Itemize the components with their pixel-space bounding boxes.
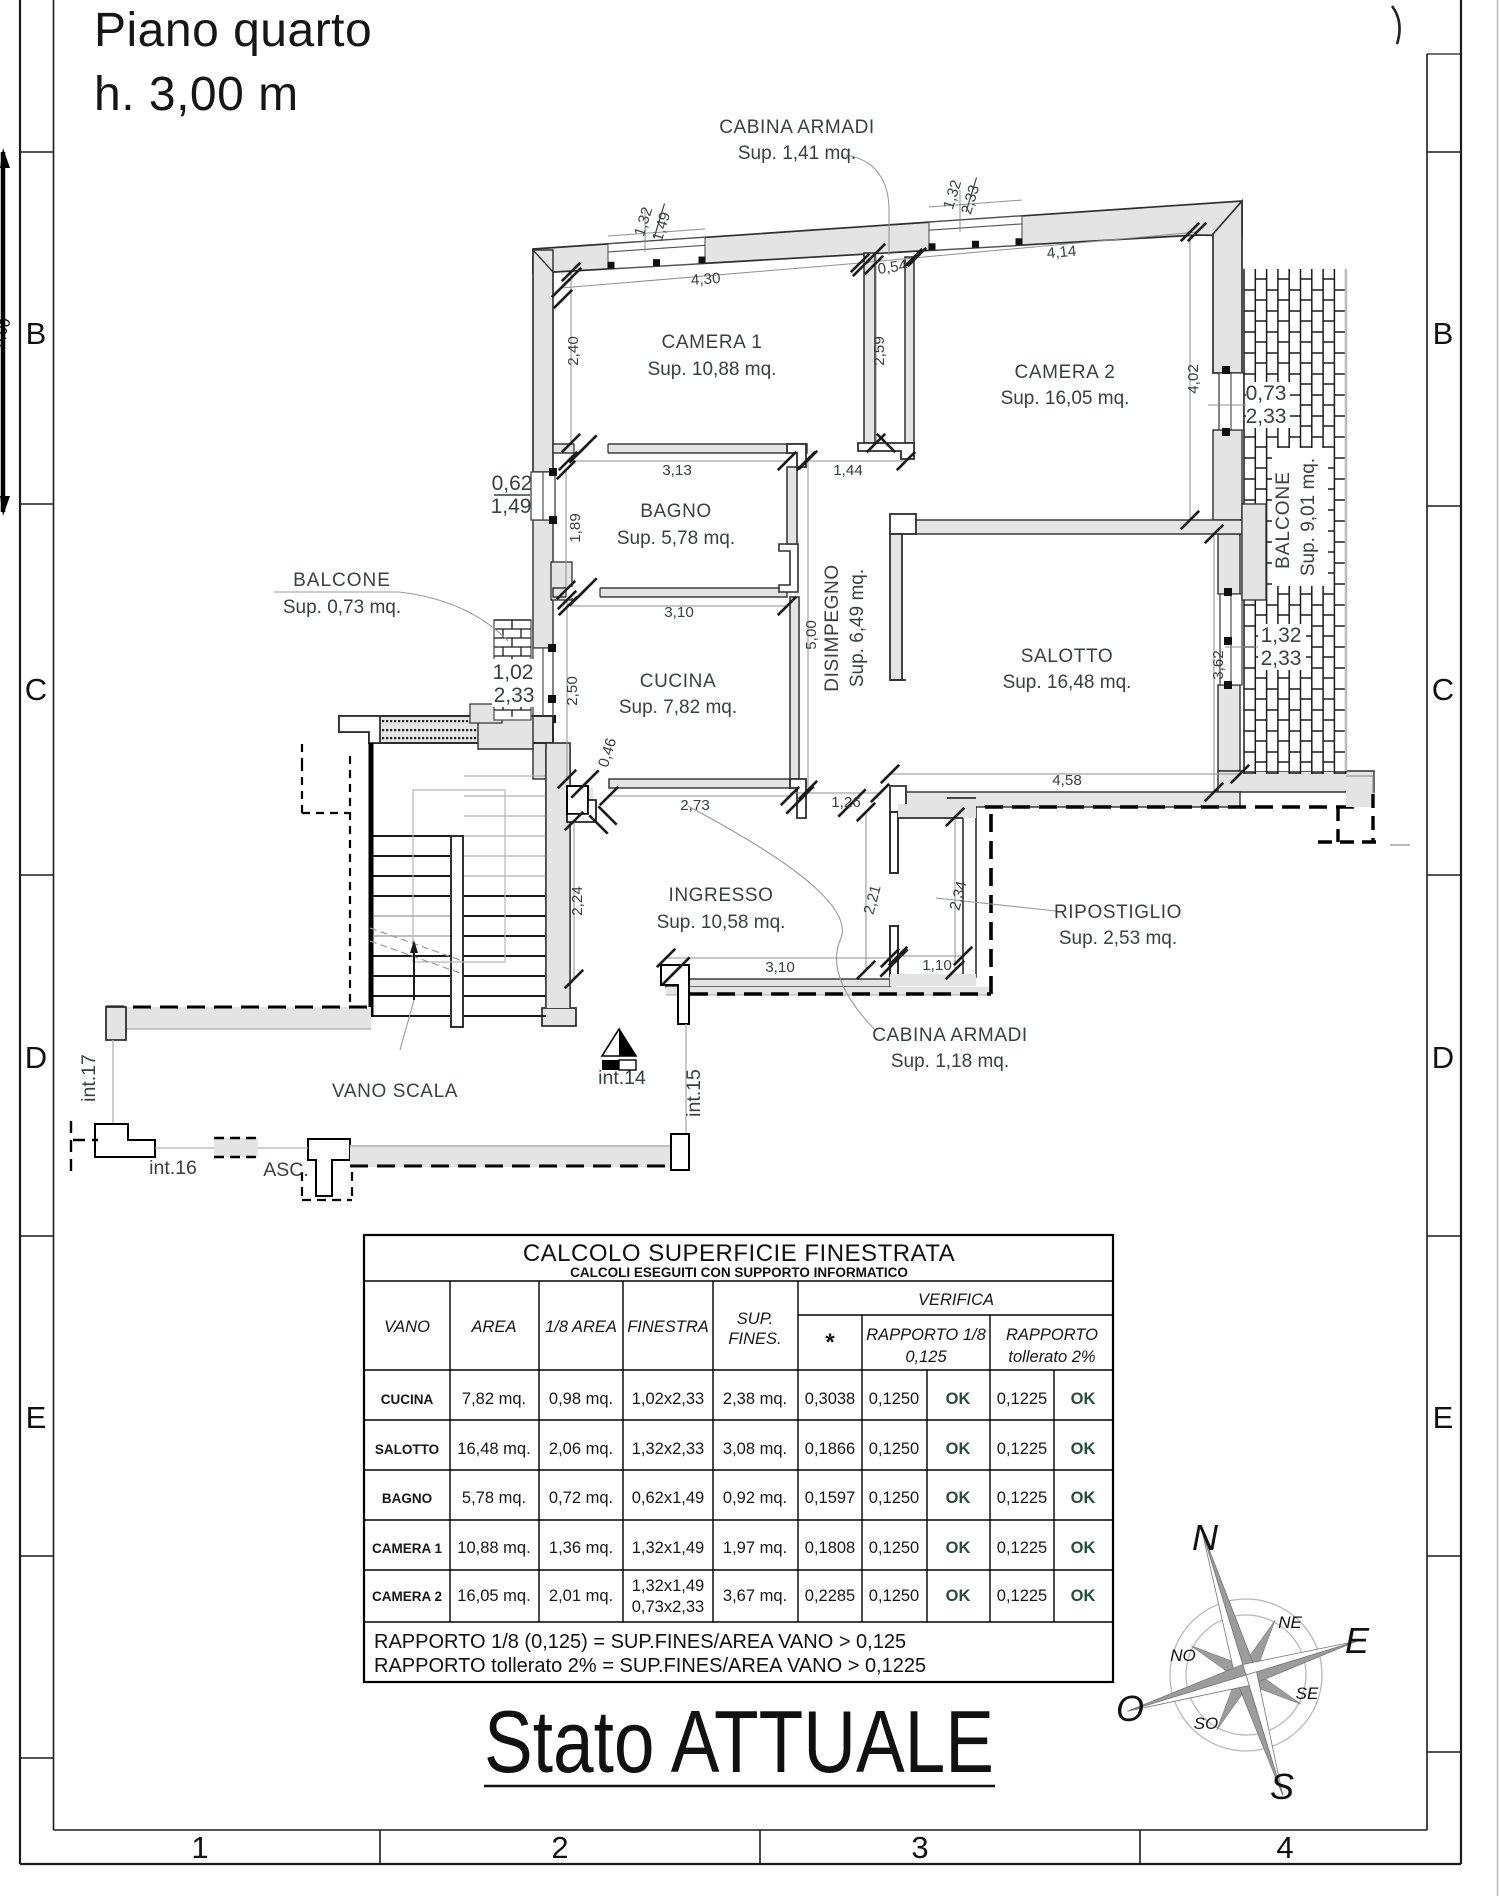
svg-text:BAGNO: BAGNO: [640, 501, 712, 522]
svg-text:BALCONE: BALCONE: [293, 570, 391, 591]
svg-text:E: E: [1433, 1400, 1454, 1435]
svg-text:VANO SCALA: VANO SCALA: [332, 1081, 458, 1102]
svg-text:OK: OK: [1071, 1489, 1096, 1507]
svg-text:E: E: [1345, 1620, 1370, 1661]
svg-text:Sup. 1,18 mq.: Sup. 1,18 mq.: [891, 1051, 1009, 1072]
svg-text:0,1225: 0,1225: [997, 1440, 1047, 1458]
svg-text:4,58: 4,58: [1052, 772, 1082, 789]
svg-text:D: D: [25, 1040, 47, 1075]
svg-text:1,89: 1,89: [567, 513, 584, 543]
svg-text:1,10: 1,10: [922, 957, 952, 974]
svg-text:CAMERA 2: CAMERA 2: [372, 1589, 442, 1604]
svg-text:SE: SE: [1296, 1684, 1319, 1703]
svg-text:Sup. 6,49 mq.: Sup. 6,49 mq.: [847, 569, 868, 687]
svg-text:3,10: 3,10: [765, 959, 795, 976]
svg-text:0,1225: 0,1225: [997, 1539, 1047, 1557]
svg-text:0,1250: 0,1250: [869, 1489, 919, 1507]
svg-text:B: B: [1433, 316, 1454, 351]
svg-text:1: 1: [191, 1830, 208, 1865]
svg-text:4,30: 4,30: [690, 270, 721, 289]
svg-text:SO: SO: [1194, 1714, 1219, 1733]
svg-text:O: O: [1116, 1688, 1144, 1729]
svg-text:VANO: VANO: [384, 1318, 430, 1336]
svg-text:CABINA ARMADI: CABINA ARMADI: [719, 117, 875, 138]
svg-text:tollerato 2%: tollerato 2%: [1008, 1348, 1095, 1366]
svg-text:INGRESSO: INGRESSO: [668, 885, 773, 906]
svg-text:RAPPORTO: RAPPORTO: [1006, 1326, 1098, 1344]
svg-text:NE: NE: [1278, 1613, 1302, 1632]
svg-text:1,02x2,33: 1,02x2,33: [632, 1390, 704, 1408]
svg-text:OK: OK: [946, 1440, 971, 1458]
svg-text:1,32: 1,32: [1261, 624, 1302, 647]
svg-text:CALCOLO SUPERFICIE FINESTRATA: CALCOLO SUPERFICIE FINESTRATA: [523, 1240, 955, 1267]
svg-text:SUP.: SUP.: [737, 1310, 773, 1328]
svg-text:1,32x2,33: 1,32x2,33: [632, 1440, 704, 1458]
svg-text:4: 4: [1276, 1830, 1293, 1865]
svg-text:1,44: 1,44: [833, 462, 863, 479]
svg-text:Sup. 10,88 mq.: Sup. 10,88 mq.: [648, 359, 777, 380]
svg-text:Sup. 1,41 mq.: Sup. 1,41 mq.: [738, 143, 856, 164]
svg-text:0,1250: 0,1250: [869, 1390, 919, 1408]
svg-text:1,02: 1,02: [493, 661, 534, 684]
svg-text:2,33: 2,33: [1246, 405, 1287, 428]
svg-text:CALCOLI ESEGUITI CON SUPPORTO: CALCOLI ESEGUITI CON SUPPORTO INFORMATIC…: [570, 1265, 908, 1280]
svg-text:VERIFICA: VERIFICA: [918, 1291, 994, 1309]
svg-text:3,10: 3,10: [664, 604, 694, 621]
svg-text:4,02: 4,02: [1185, 364, 1202, 394]
svg-text:h. 3,00 m: h. 3,00 m: [94, 68, 299, 121]
svg-text:B: B: [26, 316, 47, 351]
svg-text:2,40: 2,40: [565, 336, 582, 366]
svg-text:OK: OK: [946, 1489, 971, 1507]
svg-text:0,1808: 0,1808: [805, 1539, 855, 1557]
svg-text:1/8 AREA: 1/8 AREA: [545, 1318, 617, 1336]
svg-text:3,67 mq.: 3,67 mq.: [723, 1587, 787, 1605]
svg-text:1,26: 1,26: [831, 794, 861, 811]
svg-text:0,1225: 0,1225: [997, 1587, 1047, 1605]
svg-text:OK: OK: [946, 1587, 971, 1605]
svg-text:4,14: 4,14: [1046, 243, 1077, 263]
svg-text:OK: OK: [1071, 1587, 1096, 1605]
svg-text:2,38 mq.: 2,38 mq.: [723, 1390, 787, 1408]
svg-text:0,62x1,49: 0,62x1,49: [632, 1489, 704, 1507]
svg-text:int.16: int.16: [149, 1157, 197, 1179]
svg-text:D: D: [1432, 1040, 1454, 1075]
svg-text:0,1225: 0,1225: [997, 1489, 1047, 1507]
svg-text:2,01 mq.: 2,01 mq.: [549, 1587, 613, 1605]
svg-text:Sup. 0,73 mq.: Sup. 0,73 mq.: [283, 597, 401, 618]
svg-text:0,72 mq.: 0,72 mq.: [549, 1489, 613, 1507]
svg-text:SALOTTO: SALOTTO: [1021, 646, 1114, 667]
svg-text:*: *: [825, 1329, 835, 1356]
svg-text:Sup. 7,82 mq.: Sup. 7,82 mq.: [619, 697, 737, 718]
svg-text:16,48 mq.: 16,48 mq.: [457, 1440, 530, 1458]
svg-text:FINESTRA: FINESTRA: [627, 1318, 709, 1336]
svg-text:16,05 mq.: 16,05 mq.: [457, 1587, 530, 1605]
svg-text:0,1250: 0,1250: [869, 1539, 919, 1557]
svg-text:BALCONE: BALCONE: [1273, 471, 1294, 569]
svg-text:0,1866: 0,1866: [805, 1440, 855, 1458]
svg-text:0,73x2,33: 0,73x2,33: [632, 1598, 704, 1616]
svg-text:0,2285: 0,2285: [805, 1587, 855, 1605]
svg-text:Sup. 16,05 mq.: Sup. 16,05 mq.: [1001, 388, 1130, 409]
svg-text:S: S: [1270, 1766, 1294, 1807]
svg-text:int.17: int.17: [78, 1054, 100, 1102]
svg-text:CUCINA: CUCINA: [381, 1392, 434, 1407]
svg-text:2,59: 2,59: [871, 336, 888, 366]
svg-text:C: C: [1432, 672, 1454, 707]
svg-text:2,33: 2,33: [1261, 647, 1302, 670]
svg-text:int.15: int.15: [683, 1069, 705, 1117]
svg-text:Sup. 9,01 mq.: Sup. 9,01 mq.: [1298, 458, 1319, 576]
svg-text:Sup. 10,58 mq.: Sup. 10,58 mq.: [657, 912, 786, 933]
svg-text:OK: OK: [1071, 1390, 1096, 1408]
svg-text:RIPOSTIGLIO: RIPOSTIGLIO: [1054, 902, 1182, 923]
svg-text:RAPPORTO 1/8: RAPPORTO 1/8: [866, 1326, 986, 1344]
svg-text:1,32x1,49: 1,32x1,49: [632, 1539, 704, 1557]
svg-text:BAGNO: BAGNO: [382, 1491, 432, 1506]
svg-text:5,78 mq.: 5,78 mq.: [462, 1489, 526, 1507]
svg-text:0,1225: 0,1225: [997, 1390, 1047, 1408]
svg-text:10,88 mq.: 10,88 mq.: [457, 1539, 530, 1557]
svg-text:0,92 mq.: 0,92 mq.: [723, 1489, 787, 1507]
svg-text:2,06 mq.: 2,06 mq.: [549, 1440, 613, 1458]
svg-text:CUCINA: CUCINA: [640, 671, 716, 692]
svg-text:ASC.: ASC.: [263, 1159, 309, 1181]
svg-text:1,97 mq.: 1,97 mq.: [723, 1539, 787, 1557]
svg-text:2: 2: [551, 1830, 568, 1865]
svg-text:3,08 mq.: 3,08 mq.: [723, 1440, 787, 1458]
svg-text:AREA: AREA: [471, 1318, 517, 1336]
svg-text:NO: NO: [1170, 1646, 1196, 1665]
svg-text:DISIMPEGNO: DISIMPEGNO: [822, 564, 843, 691]
svg-text:Sup. 5,78 mq.: Sup. 5,78 mq.: [617, 528, 735, 549]
svg-text:Sup. 2,53 mq.: Sup. 2,53 mq.: [1059, 928, 1177, 949]
svg-text:0,98 mq.: 0,98 mq.: [549, 1390, 613, 1408]
svg-text:CAMERA 1: CAMERA 1: [372, 1541, 442, 1556]
svg-text:Piano quarto: Piano quarto: [94, 4, 372, 57]
svg-text:Stato ATTUALE: Stato ATTUALE: [484, 1692, 994, 1791]
svg-text:2,33: 2,33: [494, 684, 535, 707]
svg-text:0,1250: 0,1250: [869, 1587, 919, 1605]
svg-text:SALOTTO: SALOTTO: [375, 1442, 439, 1457]
svg-text:2,24: 2,24: [569, 886, 586, 916]
svg-text:1,49: 1,49: [491, 495, 532, 518]
svg-text:OK: OK: [946, 1390, 971, 1408]
svg-text:RAPPORTO tollerato 2% = SUP.: RAPPORTO tollerato 2% = SUP.FINES/AREA V…: [374, 1655, 926, 1677]
svg-text:OK: OK: [1071, 1440, 1096, 1458]
svg-text:7,82 mq.: 7,82 mq.: [462, 1390, 526, 1408]
svg-text:1,32x1,49: 1,32x1,49: [632, 1577, 704, 1595]
svg-text:OK: OK: [1071, 1539, 1096, 1557]
svg-text:0,125: 0,125: [905, 1348, 947, 1366]
svg-text:3,13: 3,13: [662, 462, 692, 479]
svg-text:E: E: [26, 1400, 47, 1435]
svg-text:2,50: 2,50: [564, 676, 581, 706]
svg-text:3,62: 3,62: [1210, 650, 1227, 680]
svg-text:CAMERA 2: CAMERA 2: [1015, 362, 1116, 383]
svg-text:0,3038: 0,3038: [805, 1390, 855, 1408]
svg-text:RAPPORTO 1/8 (0,125) = SUP.FI: RAPPORTO 1/8 (0,125) = SUP.FINES/AREA VA…: [374, 1631, 906, 1653]
svg-text:3: 3: [911, 1830, 928, 1865]
svg-text:OK: OK: [946, 1539, 971, 1557]
svg-text:FINES.: FINES.: [728, 1330, 781, 1348]
svg-text:5,00: 5,00: [803, 620, 820, 650]
svg-text:2,73: 2,73: [680, 797, 710, 814]
svg-text:0,73: 0,73: [1246, 382, 1287, 405]
svg-text:CAMERA 1: CAMERA 1: [662, 332, 763, 353]
svg-text:Sup. 16,48 mq.: Sup. 16,48 mq.: [1003, 672, 1132, 693]
svg-text:1,36 mq.: 1,36 mq.: [549, 1539, 613, 1557]
svg-text:0,1250: 0,1250: [869, 1440, 919, 1458]
svg-text:C: C: [25, 672, 47, 707]
svg-text:0,62: 0,62: [492, 472, 533, 495]
svg-text:CABINA ARMADI: CABINA ARMADI: [872, 1025, 1028, 1046]
svg-text:0,1597: 0,1597: [805, 1489, 855, 1507]
svg-text:N: N: [1192, 1517, 1219, 1558]
